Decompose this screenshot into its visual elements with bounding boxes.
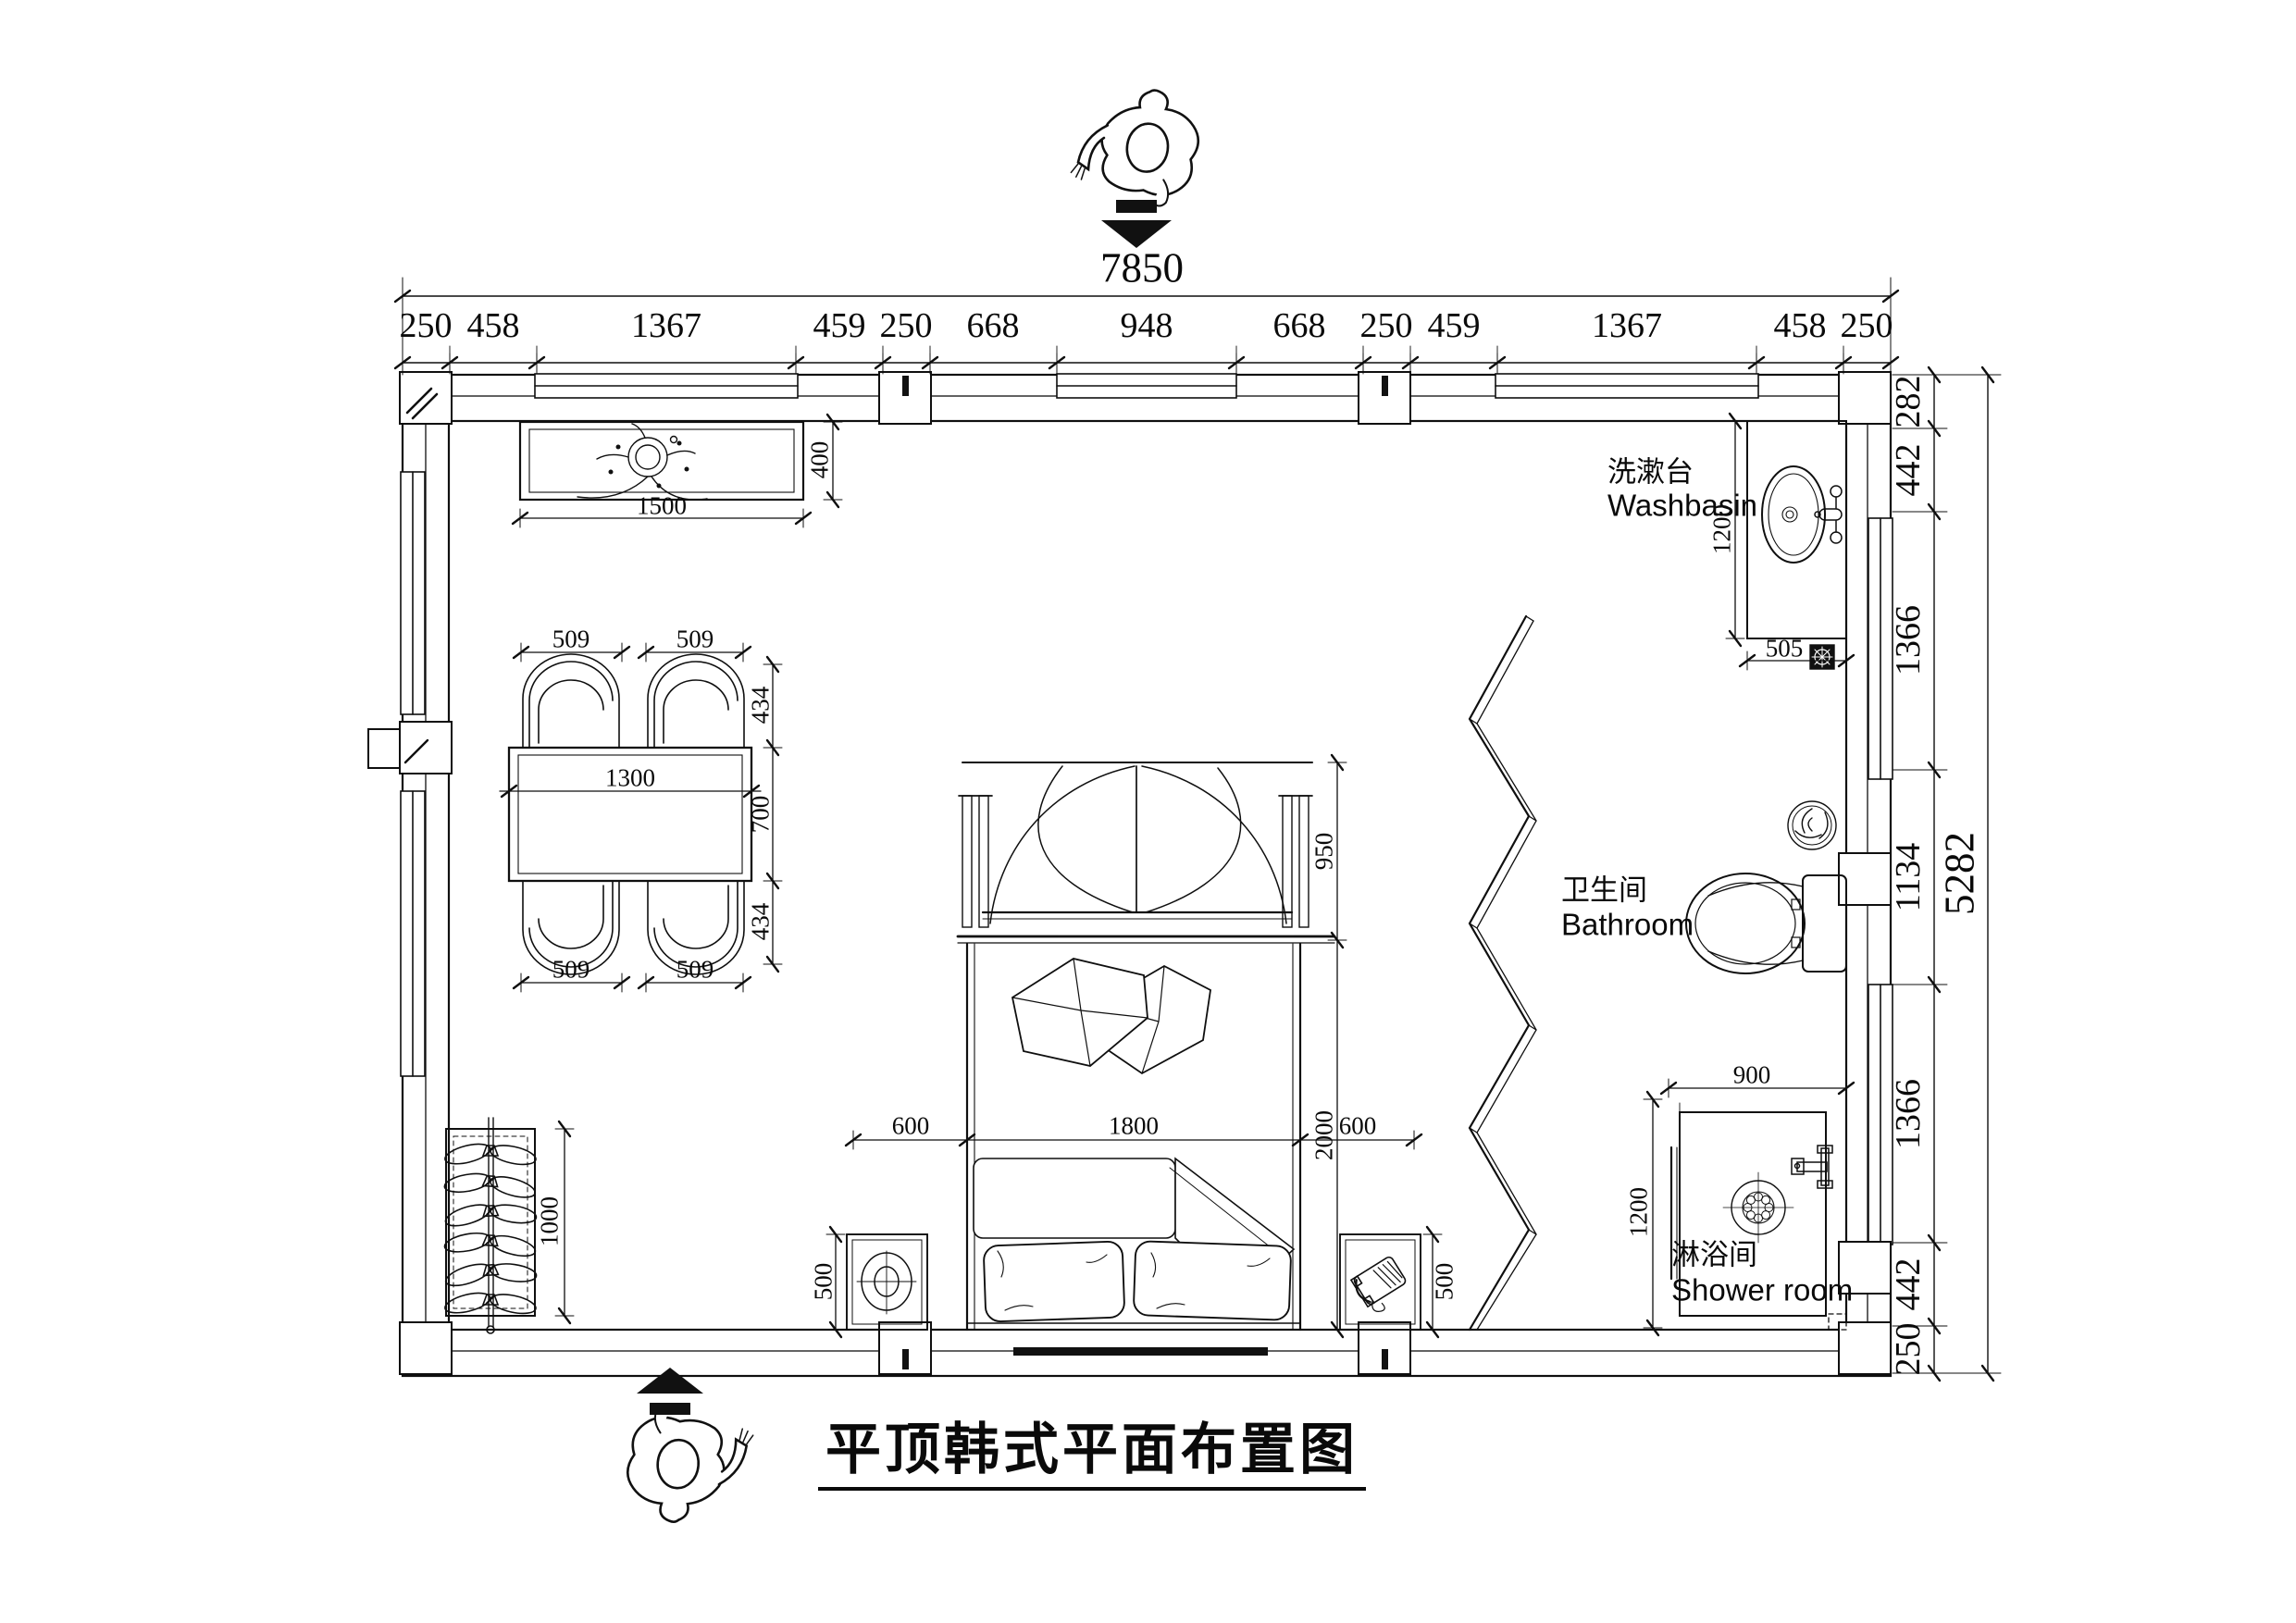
floor-plan-page: { "title": "平顶韩式平面布置图", "top_chain": { "… xyxy=(0,0,2296,1623)
dim-console-width: 1500 xyxy=(637,494,687,519)
dim-nightstand: 500 xyxy=(812,1263,837,1301)
dim-bed-width: 1800 xyxy=(1109,1114,1159,1139)
person-bottom xyxy=(624,1404,755,1528)
dim-washbasin-width: 505 xyxy=(1766,637,1804,662)
dim-top-segment: 458 xyxy=(1774,308,1827,343)
dim-right-segment: 250 xyxy=(1891,1323,1926,1376)
dim-table-depth: 700 xyxy=(749,796,774,834)
plant-decor-icon xyxy=(577,424,707,500)
dim-table-width: 1300 xyxy=(605,766,655,791)
shower-drain-icon xyxy=(1723,1172,1793,1243)
toilet-bowl xyxy=(1686,873,1805,973)
room-label-shower-cn: 淋浴间 xyxy=(1671,1241,1757,1270)
table-lamp-icon xyxy=(857,1251,916,1314)
window-top-center xyxy=(1057,374,1236,398)
room-label-bathroom-cn: 卫生间 xyxy=(1561,876,1647,905)
dim-top-segment: 668 xyxy=(1273,308,1326,343)
nightstand-right xyxy=(1340,1234,1421,1330)
dim-console-depth: 400 xyxy=(808,441,833,479)
entry-door-track xyxy=(1013,1347,1268,1356)
washbasin-counter xyxy=(1726,414,1854,670)
dim-chair: 509 xyxy=(676,627,714,652)
dim-top-segment: 459 xyxy=(1428,308,1481,343)
room-label-washbasin-cn: 洗漱台 xyxy=(1607,458,1694,487)
dim-top-segment: 250 xyxy=(400,308,453,343)
entry-arrow-up-icon xyxy=(637,1368,703,1415)
dim-chair: 509 xyxy=(552,958,590,983)
washbasin-dims xyxy=(1726,414,1854,670)
dim-chair: 509 xyxy=(552,627,590,652)
room-label-bathroom-en: Bathroom xyxy=(1561,910,1694,940)
person-top xyxy=(1068,81,1204,210)
dim-top-segment: 250 xyxy=(880,308,933,343)
basin xyxy=(1762,466,1825,563)
toilet xyxy=(1686,801,1846,973)
dim-right-segment: 442 xyxy=(1891,1258,1926,1311)
dim-right-segment: 1134 xyxy=(1891,843,1926,912)
dim-top-total: 7850 xyxy=(1100,248,1184,290)
room-label-washbasin-en: Washbasin xyxy=(1607,490,1757,521)
dim-top-segment: 459 xyxy=(813,308,866,343)
dim-chair: 509 xyxy=(676,958,714,983)
dim-dining-side: 434 xyxy=(749,687,774,725)
faucet-icon xyxy=(1815,486,1842,543)
dim-right-segment: 442 xyxy=(1891,444,1926,497)
throw-pillows xyxy=(1012,959,1210,1073)
dim-bed-side: 600 xyxy=(1339,1114,1377,1139)
floor-plan-drawing xyxy=(0,0,2296,1623)
dim-plant-rack: 1000 xyxy=(538,1196,563,1246)
dim-right-segment: 282 xyxy=(1891,376,1926,428)
bed-pillows xyxy=(984,1241,1292,1321)
dim-top-segment: 458 xyxy=(467,308,520,343)
drawing-title: 平顶韩式平面布置图 xyxy=(818,1422,1366,1491)
telephone-icon xyxy=(1350,1256,1413,1317)
folding-screen xyxy=(1470,616,1536,1330)
dim-bed-side: 600 xyxy=(892,1114,930,1139)
dim-right-total: 5282 xyxy=(1940,832,1981,915)
window-left-upper xyxy=(401,472,425,714)
floor-drain-icon xyxy=(1810,645,1834,669)
spiral-drain-icon xyxy=(1788,801,1836,849)
dim-canopy-depth: 950 xyxy=(1312,833,1337,871)
dim-nightstand: 500 xyxy=(1433,1263,1458,1301)
dim-shower-depth: 1200 xyxy=(1627,1187,1652,1237)
nightstand-left xyxy=(847,1234,927,1330)
dim-right-segment: 1366 xyxy=(1891,1079,1926,1149)
dim-top-segment: 948 xyxy=(1121,308,1173,343)
dim-top-segment: 250 xyxy=(1841,308,1893,343)
window-left-lower xyxy=(401,791,425,1076)
dim-right-segment: 1366 xyxy=(1891,605,1926,675)
dim-top-segment: 668 xyxy=(967,308,1020,343)
entry-arrow-down-icon xyxy=(1101,200,1172,248)
dim-shower-width: 900 xyxy=(1733,1063,1771,1088)
dim-top-segment: 1367 xyxy=(631,308,701,343)
window-top-right xyxy=(1496,374,1758,398)
room-label-shower-en: Shower room xyxy=(1671,1275,1853,1306)
dining-chair xyxy=(523,654,619,748)
bed-group xyxy=(826,755,1442,1337)
dim-top-segment: 1367 xyxy=(1592,308,1662,343)
window-top-left xyxy=(535,374,798,398)
dim-bed-length: 2000 xyxy=(1312,1110,1337,1160)
dim-dining-side: 434 xyxy=(749,903,774,941)
dining-set xyxy=(500,643,782,992)
dim-top-segment: 250 xyxy=(1360,308,1413,343)
dining-chair xyxy=(648,654,744,748)
bed-canopy xyxy=(959,762,1312,927)
